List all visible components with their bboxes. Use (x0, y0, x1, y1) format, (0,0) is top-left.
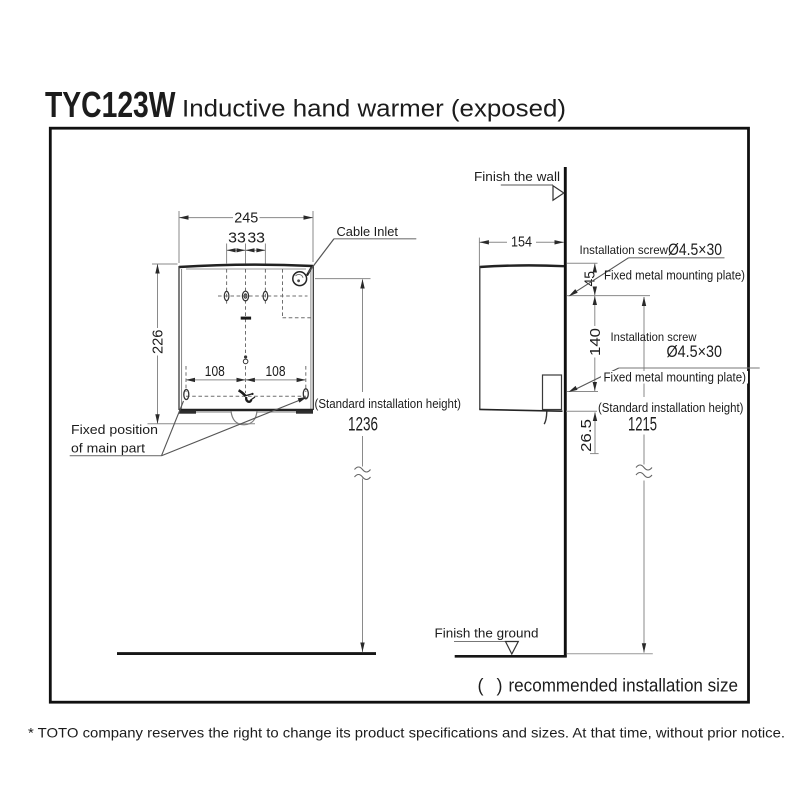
svg-text:(: ( (478, 676, 484, 696)
svg-text:Installation screw: Installation screw (580, 243, 669, 257)
svg-text:of main part: of main part (71, 441, 145, 456)
svg-text:Fixed position: Fixed position (71, 422, 158, 437)
svg-text:1236: 1236 (348, 415, 378, 436)
svg-text:Ø4.5×30: Ø4.5×30 (667, 342, 723, 361)
svg-text:Finish the ground: Finish the ground (435, 626, 539, 641)
svg-text:(Standard installation height): (Standard installation height) (598, 400, 744, 415)
svg-text:Finish the wall: Finish the wall (474, 169, 560, 184)
svg-text:* TOTO company reserves the ri: * TOTO company reserves the right to cha… (28, 725, 785, 741)
svg-text:Fixed metal mounting plate): Fixed metal mounting plate) (604, 268, 745, 283)
svg-text:108: 108 (266, 364, 286, 380)
svg-text:108: 108 (205, 364, 225, 380)
svg-text:154: 154 (511, 235, 532, 251)
svg-text:33: 33 (228, 230, 246, 246)
svg-text:Inductive hand warmer (exposed: Inductive hand warmer (exposed) (182, 96, 566, 123)
svg-text:140: 140 (588, 328, 604, 356)
svg-text:): ) (497, 676, 503, 696)
svg-text:Cable Inlet: Cable Inlet (337, 224, 399, 239)
svg-text:Ø4.5×30: Ø4.5×30 (668, 240, 722, 259)
svg-text:245: 245 (234, 210, 258, 226)
svg-text:26.5: 26.5 (579, 419, 595, 452)
svg-text:recommended installation size: recommended installation size (509, 676, 739, 696)
svg-text:1215: 1215 (628, 415, 657, 436)
svg-text:33: 33 (247, 230, 265, 246)
svg-text:Fixed metal mounting plate): Fixed metal mounting plate) (604, 370, 747, 385)
svg-text:(Standard installation height): (Standard installation height) (315, 396, 462, 411)
svg-text:226: 226 (150, 330, 166, 355)
svg-text:TYC123W: TYC123W (45, 84, 176, 125)
